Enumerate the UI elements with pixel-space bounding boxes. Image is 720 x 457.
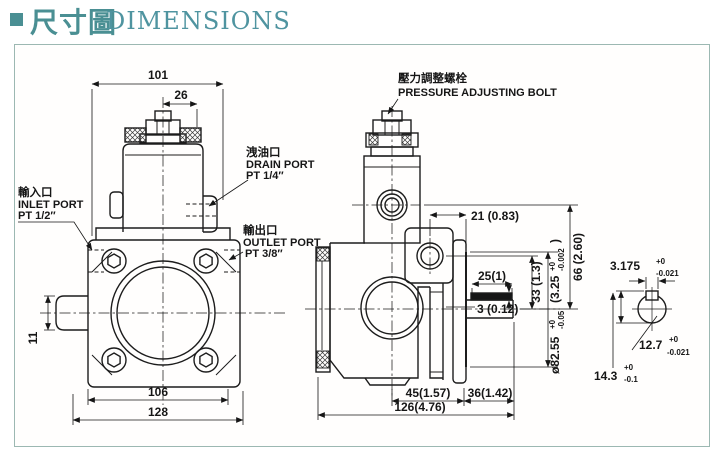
dim-keyway-width: 3.175 bbox=[610, 259, 640, 273]
dim-spigot-inch-minus: -0.002 bbox=[557, 248, 566, 271]
dim-side-boss-height: 11 bbox=[26, 331, 40, 344]
outlet-port-label-cjk: 輸出口 bbox=[243, 223, 278, 237]
dim-port-center: 21 (0.83) bbox=[471, 209, 519, 223]
dim-key-height: 3 (0.12) bbox=[477, 302, 518, 316]
dim-shaft-diameter: 12.7 bbox=[639, 338, 663, 352]
dim-spigot-close: ) bbox=[548, 239, 562, 243]
dim-shaft-center: 33 (1.3) bbox=[529, 261, 543, 302]
dim-shaft-height-plus: +0 bbox=[624, 363, 634, 372]
pressure-bolt-label-cjk: 壓力調整螺栓 bbox=[398, 71, 467, 85]
dim-keyway-width-minus: -0.021 bbox=[656, 269, 679, 278]
shaft-detail-labels: 3.175 +0 -0.021 12.7 +0 -0.021 14.3 +0 -… bbox=[594, 257, 690, 384]
dim-total-length: 126(4.76) bbox=[394, 400, 445, 414]
dim-spigot-mm: ø82.55 bbox=[548, 336, 562, 374]
dim-spigot-inch: (3.25 bbox=[548, 275, 562, 303]
dim-keyway-width-plus: +0 bbox=[656, 257, 666, 266]
shaft-detail-drawing bbox=[632, 287, 672, 331]
dim-shaft-height: 14.3 bbox=[594, 369, 618, 383]
dim-spigot-mm-plus: +0 bbox=[548, 319, 557, 329]
dim-spigot-inch-plus: +0 bbox=[548, 261, 557, 271]
drain-port-label-cjk: 洩油口 bbox=[246, 145, 281, 159]
dim-body-length: 45(1.57) bbox=[406, 386, 451, 400]
pressure-bolt-label-en: PRESSURE ADJUSTING BOLT bbox=[398, 87, 557, 99]
inlet-port-label-cjk: 輸入口 bbox=[18, 185, 53, 199]
dim-spigot-diameter: ø82.55 +0 -0.05 (3.25 +0 -0.002 ) bbox=[548, 239, 566, 374]
dim-shaft-height-minus: -0.1 bbox=[624, 375, 638, 384]
dim-key-length: 25(1) bbox=[478, 269, 506, 283]
dim-center-height: 66 (2.60) bbox=[571, 233, 585, 281]
dim-adjust-offset: 26 bbox=[174, 88, 188, 102]
side-dimensions bbox=[318, 99, 578, 420]
dim-spigot-mm-minus: -0.05 bbox=[557, 310, 566, 329]
shaft-detail-dimensions bbox=[613, 277, 675, 368]
inlet-port-thread: PT 1/2″ bbox=[18, 210, 56, 222]
drain-port-thread: PT 1/4″ bbox=[246, 170, 284, 182]
dim-shaft-length: 36(1.42) bbox=[468, 386, 513, 400]
dim-total-width: 128 bbox=[148, 405, 168, 419]
dimensions-drawing: 101 26 11 106 128 輸入口 INLET PORT PT 1/2″… bbox=[0, 0, 720, 457]
dim-mount-face-width: 101 bbox=[148, 68, 168, 82]
side-dimension-labels: 壓力調整螺栓 PRESSURE ADJUSTING BOLT 21 (0.83)… bbox=[394, 71, 585, 414]
dim-shaft-diameter-plus: +0 bbox=[669, 335, 679, 344]
outlet-port-thread: PT 3/8″ bbox=[245, 248, 283, 260]
dim-shaft-diameter-minus: -0.021 bbox=[667, 348, 690, 357]
dim-bolt-spacing: 106 bbox=[148, 385, 168, 399]
